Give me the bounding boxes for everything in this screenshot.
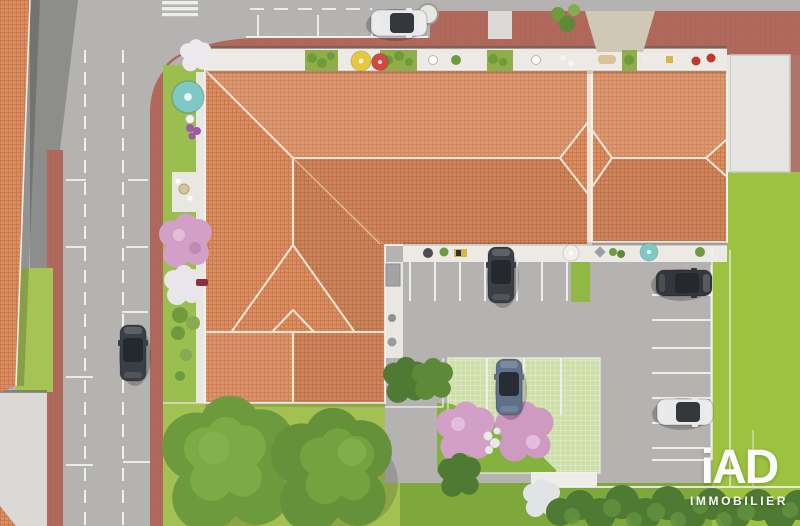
terrace-table-1 xyxy=(429,56,438,65)
parasol-white-icon xyxy=(563,245,579,261)
car-blue-pavers xyxy=(494,359,527,420)
green-parking-stall xyxy=(571,262,590,302)
ac-unit xyxy=(386,264,400,286)
red-bench xyxy=(196,279,208,286)
red-chair-2 xyxy=(707,54,716,63)
eave-shadow-bottom xyxy=(403,242,727,246)
crosswalk xyxy=(162,1,198,16)
eave-shadow-top xyxy=(205,70,727,74)
white-flowering-tree-top xyxy=(180,39,211,71)
car-white-right-lot xyxy=(652,397,713,430)
parasol-red-icon xyxy=(372,54,389,71)
driveway-entrance xyxy=(585,11,655,52)
courtyard-shrub-bed xyxy=(383,357,453,403)
terrace-fence-shadow xyxy=(205,46,727,49)
rear-driveway-edge xyxy=(0,390,47,393)
car-white-street-top xyxy=(366,8,427,41)
sidewalk-right-of-road xyxy=(150,168,163,526)
parasol-yellow-icon xyxy=(351,51,371,71)
pink-flowering-tree-garden xyxy=(159,214,212,268)
parasol-teal-terrace-icon xyxy=(640,243,658,261)
parasol-teal-garden-icon xyxy=(172,81,204,113)
garden-table xyxy=(186,115,195,124)
terrace-table-2 xyxy=(532,56,541,65)
right-lawn xyxy=(712,245,800,526)
terrace-sofa xyxy=(598,55,616,64)
site-plan-canvas xyxy=(0,0,800,526)
car-black-right-lot xyxy=(651,268,712,301)
right-upper-lawn xyxy=(727,172,800,247)
rear-driveway xyxy=(0,392,47,526)
aerial-site-plan: iAD IMMOBILIER xyxy=(0,0,800,526)
car-dark-courtyard xyxy=(486,247,519,308)
car-dark-street-left xyxy=(118,325,151,386)
top-terrace-strip xyxy=(205,48,727,72)
pink-tree-1 xyxy=(436,402,495,462)
entry-path xyxy=(488,11,512,39)
patio-table xyxy=(179,184,189,194)
sidewalk-top-right-edge xyxy=(790,55,800,175)
concrete-patio xyxy=(730,55,790,172)
dark-bush xyxy=(438,453,481,497)
red-chair-1 xyxy=(692,57,701,66)
